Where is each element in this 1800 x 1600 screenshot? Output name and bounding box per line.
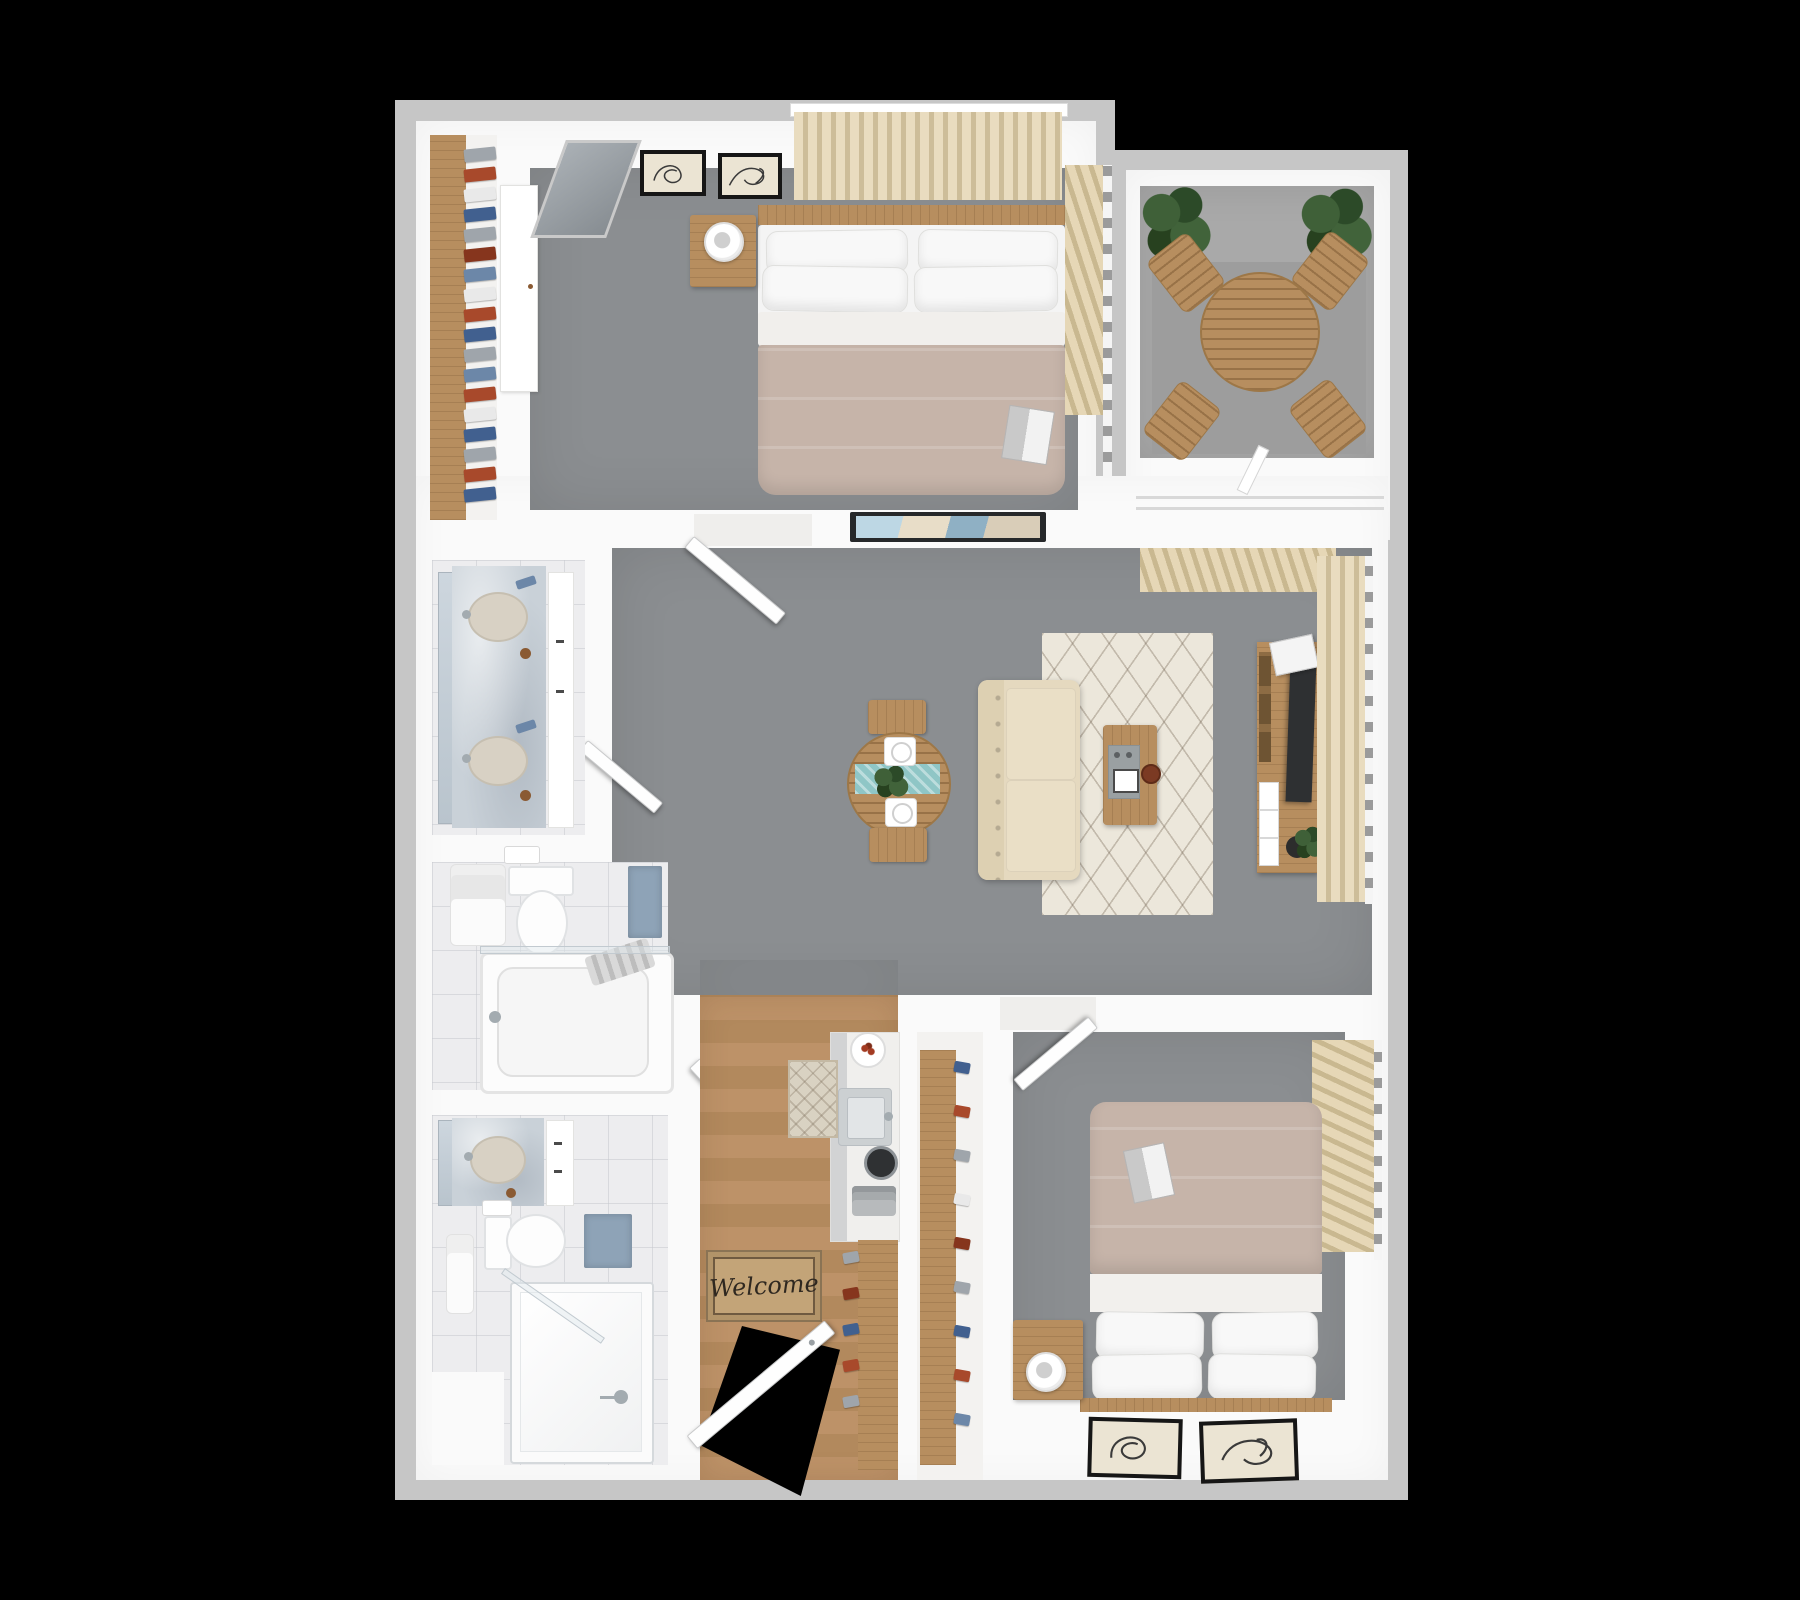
dining-bench — [869, 828, 927, 862]
wall-art-frame — [640, 150, 706, 196]
living-window-track — [1365, 556, 1373, 904]
toilet2-bowl — [506, 1214, 566, 1268]
shoe-rack-entry — [858, 1240, 898, 1470]
bathtub-basin — [497, 967, 649, 1077]
wall-art-frame — [1199, 1418, 1299, 1483]
sink-basin — [847, 1097, 885, 1139]
window-right-frame — [1103, 165, 1112, 478]
magazine-on-bed — [1001, 405, 1055, 466]
tub-glass-screen — [480, 946, 670, 954]
sink-faucet — [884, 1112, 893, 1121]
bed1-headboard — [758, 205, 1065, 225]
console-drawer — [1259, 838, 1279, 866]
plate-of-food — [850, 1032, 886, 1068]
sliding-door-track — [1136, 496, 1384, 499]
sofa — [978, 680, 1080, 880]
bed2-table-lamp — [1026, 1352, 1066, 1392]
bed1-pillow — [914, 265, 1059, 314]
bed2-headboard-base — [1080, 1398, 1332, 1412]
cabinet-handle — [554, 1142, 562, 1145]
wall-tv-screen — [856, 516, 1040, 538]
bed2-pillow — [1208, 1353, 1317, 1401]
console-drawer — [1259, 782, 1279, 810]
tub-faucet — [489, 1011, 501, 1023]
kitchen-runner-rug — [788, 1060, 838, 1138]
centerpiece-plant — [872, 766, 910, 798]
plate — [892, 803, 913, 824]
shower-arm — [600, 1396, 616, 1399]
towel-rack — [446, 1234, 474, 1314]
balcony-round-table — [1200, 272, 1320, 392]
bathroom2-storage-block — [432, 1372, 504, 1465]
towel-rack — [450, 864, 506, 946]
toothbrush-cup — [520, 648, 531, 659]
sliding-door-track — [1136, 507, 1384, 510]
bathtub — [480, 952, 674, 1094]
wardrobe — [500, 185, 538, 392]
living-carpet-corridor — [700, 960, 898, 1000]
coffee-jar — [1141, 764, 1161, 784]
place-setting — [885, 798, 917, 827]
bed2-pillow — [1092, 1353, 1203, 1401]
floor-plan-render: Welcome — [0, 0, 1800, 1600]
kettle — [864, 1146, 898, 1180]
toilet-paper-holder — [504, 846, 540, 864]
bath-mat — [628, 866, 662, 938]
bath-mat — [584, 1214, 632, 1268]
wall-art-frame — [1087, 1417, 1183, 1479]
faucet — [464, 1152, 473, 1161]
wall-art-frame — [718, 153, 782, 199]
console-drawer — [1259, 810, 1279, 838]
bed1-sheet-fold — [758, 312, 1065, 346]
sofa-seat-cushion — [1006, 780, 1076, 872]
vanity2-cabinet — [546, 1120, 574, 1206]
toothbrush-cup — [506, 1188, 516, 1198]
console-shelf-slots — [1259, 652, 1271, 762]
shower-head — [614, 1390, 628, 1404]
sofa-back — [978, 680, 1004, 880]
toilet-paper-holder — [482, 1200, 512, 1216]
faucet — [462, 754, 471, 763]
console-tv — [1286, 660, 1317, 803]
plate — [891, 742, 912, 763]
cabinet-handle — [556, 690, 564, 693]
bedroom2-window-frame — [1374, 1040, 1382, 1260]
closet-shelf — [430, 135, 466, 520]
toothbrush-cup — [520, 790, 531, 801]
vanity2-sink — [470, 1136, 526, 1184]
dining-bench — [868, 700, 926, 734]
vanity-sink — [468, 736, 528, 786]
cabinet-handle — [556, 640, 564, 643]
walk-in-shower — [510, 1282, 654, 1464]
shower-pan — [520, 1292, 642, 1452]
welcome-mat-text: Welcome — [706, 1249, 821, 1323]
wall-tv — [850, 512, 1046, 542]
curtains-top-window — [794, 112, 1062, 200]
bed2-blanket — [1090, 1102, 1322, 1274]
faucet — [462, 610, 471, 619]
entry-door-knob — [808, 1338, 816, 1346]
bed1-pillow — [762, 265, 909, 314]
coffee-table-tray — [1108, 745, 1140, 799]
bed1-table-lamp — [704, 222, 744, 262]
curtains-living-window — [1317, 556, 1365, 902]
vanity-sink — [468, 592, 528, 642]
tray-knob — [1114, 752, 1120, 758]
welcome-mat: Welcome — [706, 1250, 822, 1322]
tray-knob — [1126, 752, 1132, 758]
sofa-seat-cushion — [1006, 688, 1076, 780]
bed2-sheet-fold — [1090, 1274, 1322, 1312]
curtains-balcony-door — [1140, 548, 1336, 592]
cabinet-handle — [554, 1170, 562, 1173]
place-setting — [884, 737, 916, 766]
curtains-right-window — [1065, 165, 1103, 415]
tray-card — [1113, 769, 1139, 793]
shoe-shelf — [920, 1050, 956, 1465]
toaster — [852, 1186, 896, 1216]
wardrobe-handle — [528, 284, 533, 289]
vanity-cabinet-front — [548, 572, 574, 828]
bedroom1-door-threshold — [694, 514, 812, 546]
